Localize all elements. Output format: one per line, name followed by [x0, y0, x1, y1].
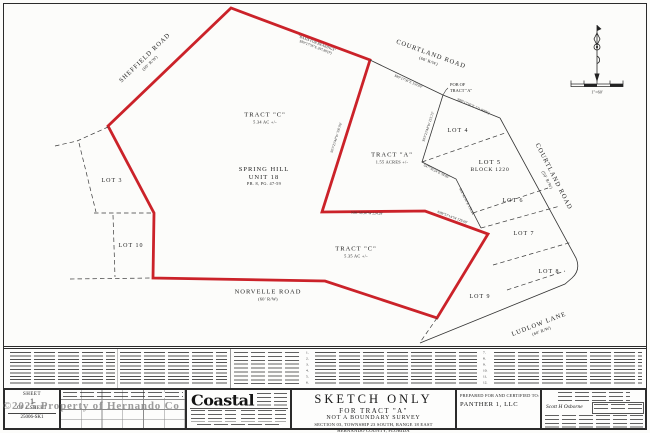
county-state: HERNANDO COUNTY, FLORIDA — [292, 428, 455, 433]
note-number: 3. — [306, 363, 309, 366]
legend-column-divider — [117, 349, 118, 388]
firm-logo-box: Coastal — [186, 389, 291, 429]
lot-10-label: LOT 10 — [118, 243, 143, 249]
lot-8-label: LOT 8 — [538, 269, 559, 275]
note-number: 1. — [306, 351, 309, 354]
note-number: 11. — [483, 375, 487, 378]
client-name: PANTHER 1, LLC — [460, 401, 518, 408]
subdivision-plat-ref: PB. 8, PG. 47-59 — [239, 181, 290, 186]
tract-c-south-label: TRACT "C" 5.35 AC +/- — [335, 246, 376, 259]
road-name: NORVELLE ROAD — [235, 289, 302, 297]
legend-micro-text-col2 — [120, 352, 227, 386]
tract-name: TRACT "C" — [244, 112, 285, 120]
scale-bar-icon — [571, 81, 623, 87]
revision-table-headers — [63, 392, 183, 398]
lot-3-label: LOT 3 — [101, 178, 122, 184]
notes-numbers-col2: 7.8.9.10.11.12. — [483, 351, 491, 387]
pob-line2: TRACT "A" — [450, 88, 472, 94]
note-number: 9. — [483, 363, 487, 366]
note-number: 10. — [483, 369, 487, 372]
lot-5-label: LOT 5 BLOCK 1220 — [470, 159, 509, 173]
tract-area: 1.55 ACRES +/- — [371, 159, 413, 164]
title-block: SKETCH ONLY FOR TRACT "A" NOT A BOUNDARY… — [291, 389, 456, 429]
survey-type-note: NOT A BOUNDARY SURVEY — [292, 415, 455, 421]
legend-micro-text-col1 — [10, 352, 115, 386]
notes-micro-text-col2 — [494, 352, 642, 386]
scale-label: 1"=60' — [591, 90, 602, 95]
firm-address-left-micro-text — [191, 410, 236, 422]
block-number: BLOCK 1220 — [470, 167, 509, 173]
firm-logo-text: Coastal — [191, 392, 254, 409]
note-number: 7. — [483, 351, 487, 354]
road-rw: (60' R/W) — [235, 296, 302, 301]
legend-notes-band: 1.2.3.4.5.6. 7.8.9.10.11.12. — [4, 346, 646, 389]
file-number: 25006-SK1 — [5, 415, 59, 420]
subdivision-name: SPRING HILL — [239, 166, 290, 174]
surveyor-certificate-box: Scott H Osborne — [541, 389, 646, 429]
firm-services-micro-text — [257, 393, 287, 406]
tract-area: 5.34 AC +/- — [244, 119, 285, 124]
subdivision-label: SPRING HILL UNIT 18 PB. 8, PG. 47-59 — [239, 166, 290, 186]
note-number: 12. — [483, 381, 487, 384]
firm-address-right-micro-text — [241, 410, 286, 422]
notes-numbers-col1: 1.2.3.4.5.6. — [306, 351, 311, 387]
lot-6-label: LOT 6 — [502, 198, 523, 204]
license-box — [592, 402, 644, 414]
note-number: 8. — [483, 357, 487, 360]
license-micro-text — [594, 404, 642, 412]
firm-certificate-micro-text — [197, 424, 282, 428]
surveyor-name: Scott H Osborne — [546, 404, 583, 410]
legend-symbols-micro-text — [234, 352, 300, 386]
lot-7-label: LOT 7 — [513, 231, 534, 237]
subdivision-unit: UNIT 18 — [239, 173, 290, 181]
certificate-header-micro-text — [558, 392, 630, 402]
prepared-for-heading: PREPARED FOR AND CERTIFIED TO: — [460, 393, 539, 398]
road-label-norvelle: NORVELLE ROAD (60' R/W) — [235, 289, 302, 302]
tract-name: TRACT "A" — [371, 152, 413, 160]
note-number: 2. — [306, 357, 309, 360]
notes-micro-text-col1 — [315, 352, 477, 386]
lot-9-label: LOT 9 — [469, 294, 490, 300]
watermark: ©2025 Property of Hernando Co — [3, 400, 180, 412]
drawing-title: SKETCH ONLY — [292, 392, 455, 407]
north-arrow-icon — [594, 25, 602, 82]
pob-label: POB OF TRACT "A" — [450, 82, 472, 93]
note-number: 4. — [306, 369, 309, 372]
lot-number: LOT 5 — [470, 159, 509, 167]
tract-a-label: TRACT "A" 1.55 ACRES +/- — [371, 152, 413, 165]
tract-c-north-label: TRACT "C" 5.34 AC +/- — [244, 112, 285, 125]
certificate-footer-micro-text — [545, 415, 643, 428]
legend-divider — [230, 349, 231, 388]
lot-4-label: LOT 4 — [447, 128, 468, 134]
drawing-subject: FOR TRACT "A" — [292, 407, 455, 415]
tract-name: TRACT "C" — [335, 246, 376, 254]
section-township-range: SECTION 03, TOWNSHIP 23 SOUTH, RANGE 18 … — [292, 422, 455, 427]
note-number: 6. — [306, 381, 309, 384]
prepared-for-box: PREPARED FOR AND CERTIFIED TO: PANTHER 1… — [456, 389, 541, 429]
survey-sheet-page: SHEFFIELD ROAD (60' R/W) COURTLAND ROAD … — [0, 0, 650, 433]
tract-area: 5.35 AC +/- — [335, 253, 376, 258]
note-number: 5. — [306, 375, 309, 378]
pob-leader-line — [443, 88, 448, 95]
